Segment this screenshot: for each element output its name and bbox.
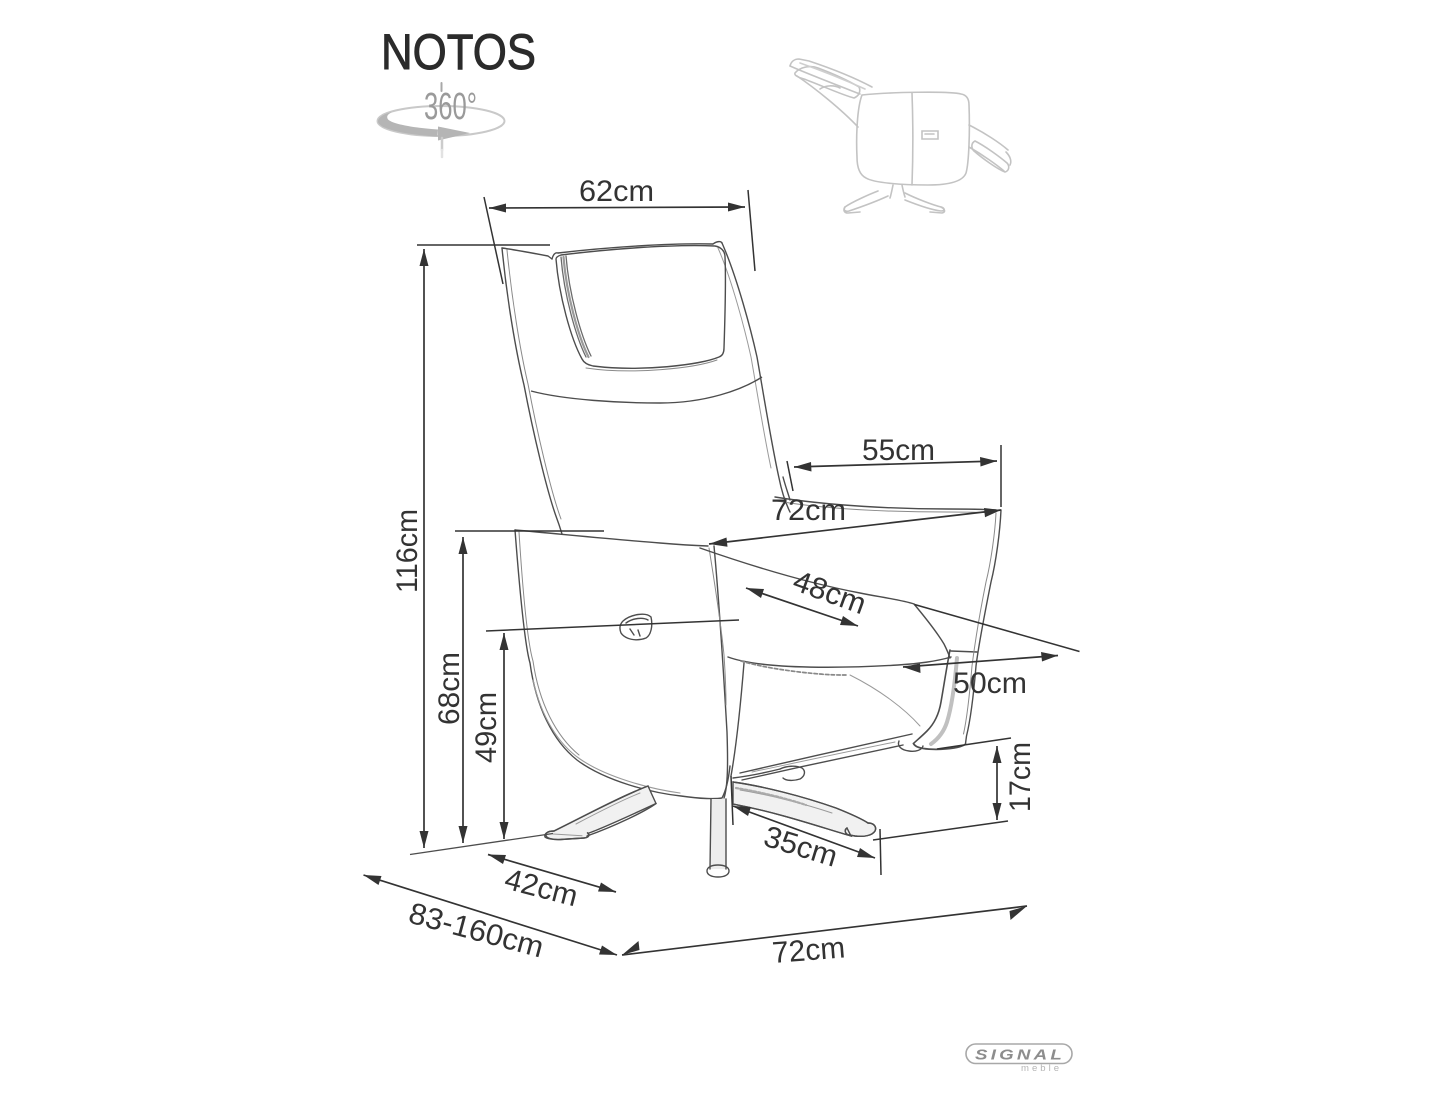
svg-text:55cm: 55cm — [862, 434, 935, 467]
svg-text:17cm: 17cm — [1004, 742, 1037, 812]
svg-text:50cm: 50cm — [953, 667, 1027, 700]
svg-text:SIGNAL: SIGNAL — [975, 1048, 1065, 1064]
svg-text:72cm: 72cm — [771, 931, 846, 970]
svg-text:NOTOS: NOTOS — [381, 24, 536, 80]
svg-text:49cm: 49cm — [470, 692, 503, 763]
svg-text:62cm: 62cm — [579, 175, 654, 208]
svg-text:72cm: 72cm — [771, 494, 846, 527]
svg-text:meble: meble — [1021, 1063, 1062, 1074]
svg-text:360°: 360° — [424, 86, 477, 128]
svg-text:68cm: 68cm — [433, 652, 466, 725]
svg-text:116cm: 116cm — [391, 509, 424, 593]
